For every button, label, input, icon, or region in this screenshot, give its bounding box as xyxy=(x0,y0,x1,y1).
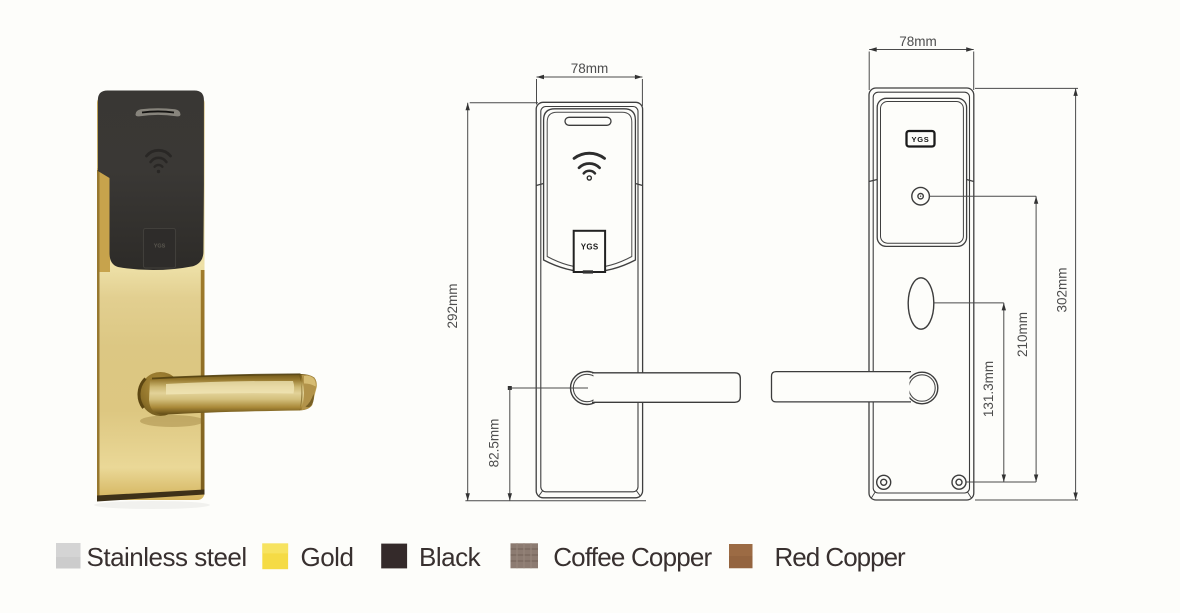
svg-text:Red Copper: Red Copper xyxy=(775,542,907,572)
svg-text:292mm: 292mm xyxy=(445,283,460,328)
svg-text:78mm: 78mm xyxy=(571,61,609,76)
svg-text:131.3mm: 131.3mm xyxy=(981,361,996,417)
svg-text:82.5mm: 82.5mm xyxy=(487,419,502,468)
svg-text:YGS: YGS xyxy=(581,243,599,252)
svg-text:Coffee Copper: Coffee Copper xyxy=(553,542,712,572)
svg-text:78mm: 78mm xyxy=(899,34,937,49)
svg-text:Black: Black xyxy=(419,542,482,572)
svg-text:YGS: YGS xyxy=(154,244,166,250)
svg-text:210mm: 210mm xyxy=(1015,312,1030,357)
svg-text:Gold: Gold xyxy=(301,542,354,572)
svg-text:YGS: YGS xyxy=(912,135,930,144)
svg-text:302mm: 302mm xyxy=(1055,267,1070,312)
svg-text:Stainless steel: Stainless steel xyxy=(87,542,247,572)
